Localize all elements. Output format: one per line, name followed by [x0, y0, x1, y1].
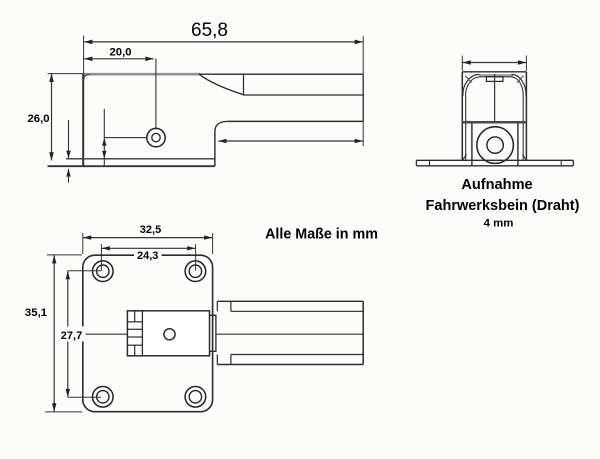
svg-text:24,3: 24,3: [137, 250, 158, 262]
svg-text:26,0: 26,0: [28, 113, 50, 125]
svg-text:Alle Maße in mm: Alle Maße in mm: [265, 227, 378, 243]
svg-text:Aufnahme: Aufnahme: [461, 177, 532, 193]
svg-text:27,7: 27,7: [61, 330, 82, 342]
svg-text:35,1: 35,1: [25, 307, 48, 319]
svg-text:32,5: 32,5: [140, 224, 161, 236]
svg-text:20,0: 20,0: [110, 47, 132, 59]
svg-text:Fahrwerksbein (Draht): Fahrwerksbein (Draht): [426, 198, 580, 214]
svg-text:65,8: 65,8: [191, 20, 228, 41]
svg-text:4 mm: 4 mm: [484, 218, 514, 230]
